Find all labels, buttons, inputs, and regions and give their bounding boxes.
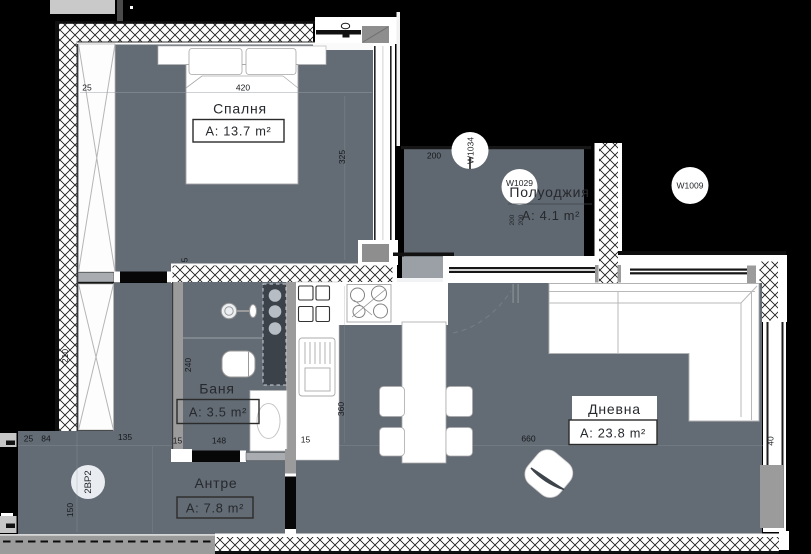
svg-text:Антре: Антре — [194, 475, 237, 491]
svg-text:660: 660 — [521, 434, 535, 444]
svg-text:420: 420 — [236, 83, 250, 93]
svg-text:200: 200 — [427, 151, 441, 161]
svg-text:Баня: Баня — [199, 381, 235, 397]
svg-text:25: 25 — [24, 434, 34, 444]
svg-text:A: 13.7 m²: A: 13.7 m² — [205, 124, 271, 139]
svg-text:325: 325 — [337, 150, 347, 164]
svg-text:Дневна: Дневна — [588, 401, 641, 417]
svg-text:135: 135 — [118, 432, 132, 442]
svg-text:200: 200 — [509, 214, 516, 225]
svg-text:2BP2: 2BP2 — [83, 470, 94, 493]
svg-text:25: 25 — [82, 83, 92, 93]
svg-text:5: 5 — [180, 257, 190, 262]
svg-text:148: 148 — [212, 436, 226, 446]
svg-text:A: 3.5 m²: A: 3.5 m² — [189, 405, 247, 420]
svg-text:A: 23.8 m²: A: 23.8 m² — [580, 426, 646, 441]
svg-text:Полуоджия: Полуоджия — [509, 184, 589, 200]
svg-text:210: 210 — [60, 349, 70, 363]
svg-text:A: 4.1 m²: A: 4.1 m² — [522, 208, 580, 223]
svg-text:15: 15 — [301, 435, 311, 445]
svg-text:240: 240 — [183, 358, 193, 372]
svg-text:A: 7.8 m²: A: 7.8 m² — [186, 501, 244, 516]
svg-text:360: 360 — [336, 402, 346, 416]
svg-text:15: 15 — [173, 436, 183, 446]
svg-text:W1009: W1009 — [677, 181, 704, 191]
svg-text:40: 40 — [766, 436, 776, 446]
svg-text:Спалня: Спалня — [213, 101, 267, 117]
svg-text:150: 150 — [65, 503, 75, 517]
svg-text:200: 200 — [518, 214, 525, 225]
svg-text:84: 84 — [41, 434, 51, 444]
